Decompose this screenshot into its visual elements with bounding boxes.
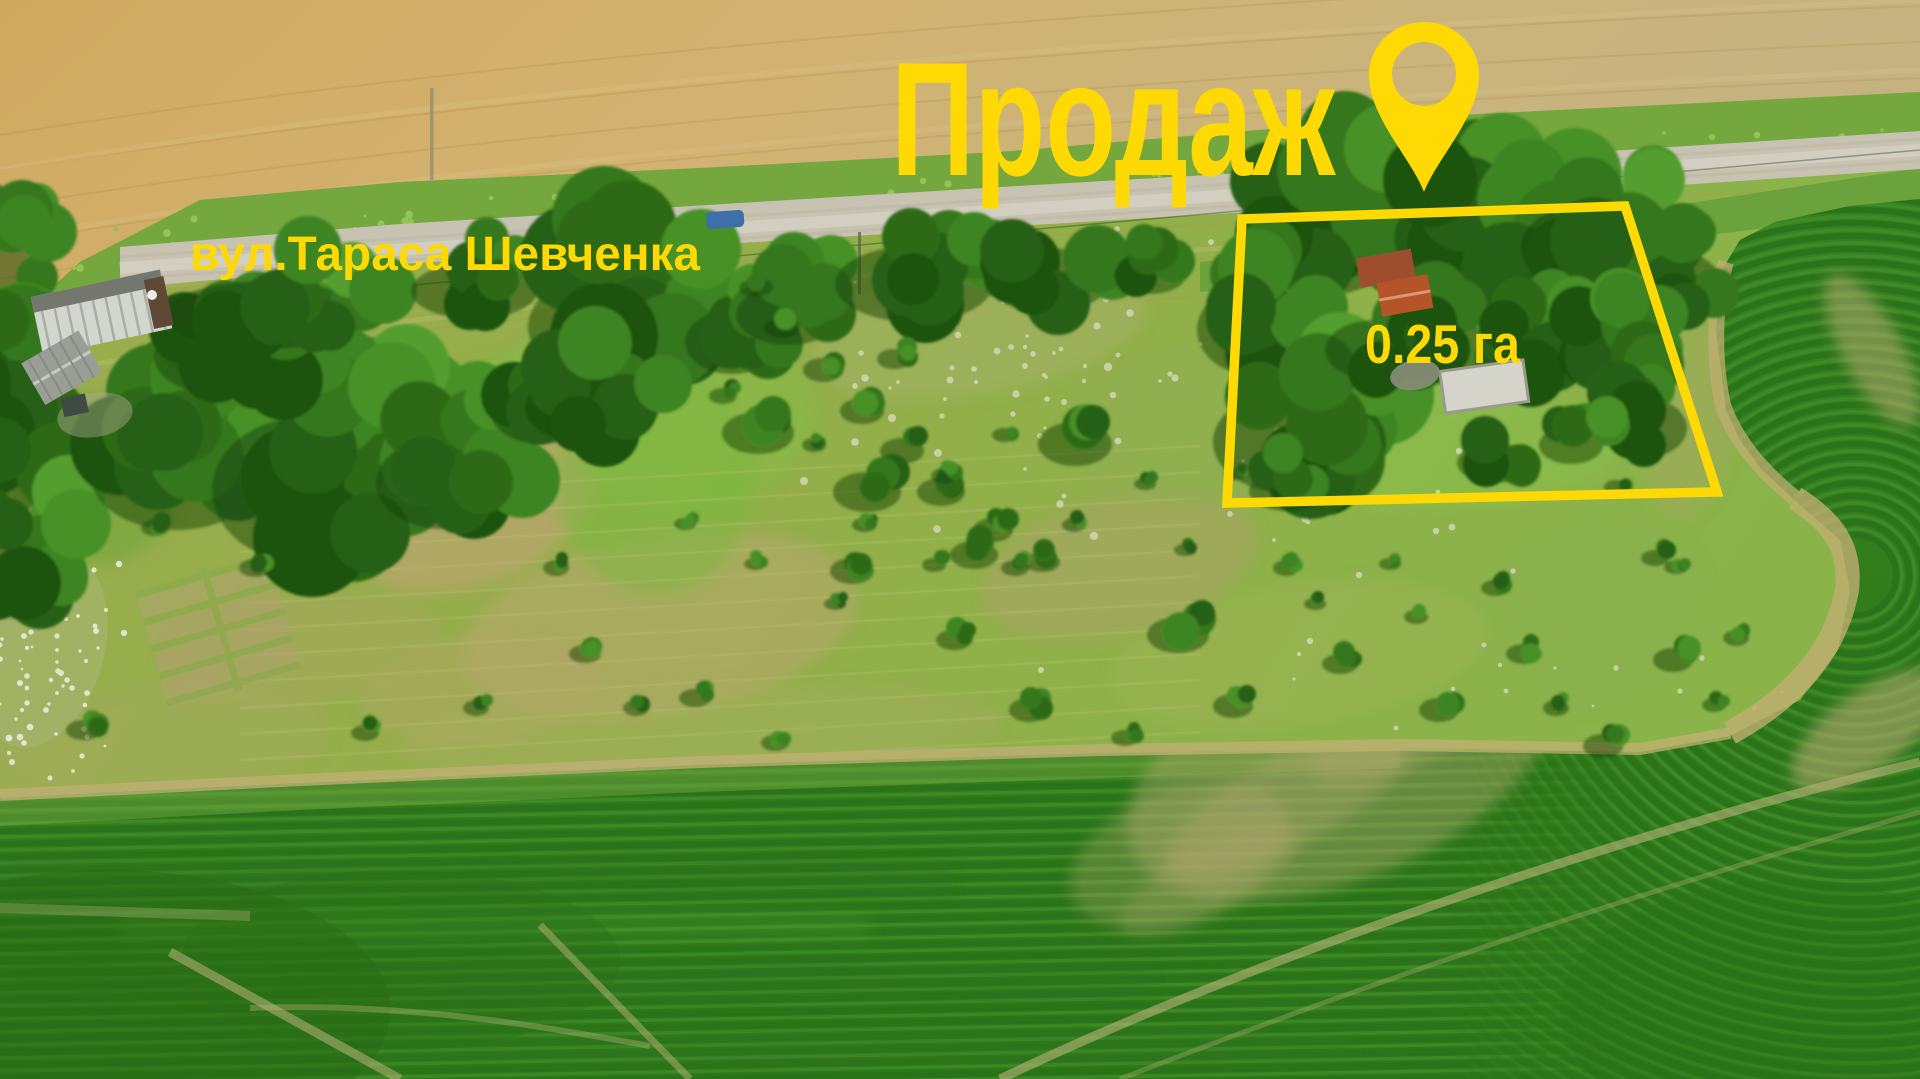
svg-text:0.25 га: 0.25 га <box>1365 313 1520 375</box>
svg-text:вул.Тараса Шевченка: вул.Тараса Шевченка <box>190 228 700 281</box>
svg-text:Продаж: Продаж <box>891 29 1337 210</box>
